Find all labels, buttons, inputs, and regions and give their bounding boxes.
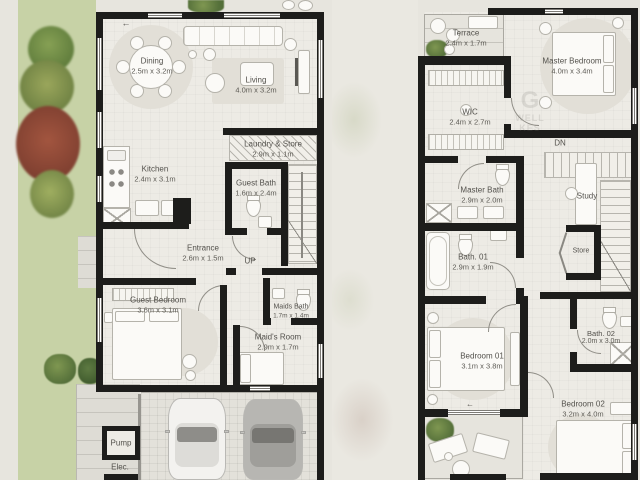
wall-segment	[486, 156, 520, 163]
wall-segment	[520, 296, 528, 417]
pendant-lamp	[612, 17, 624, 29]
outdoor-pot	[282, 0, 295, 10]
wic-closet	[428, 134, 504, 150]
room-label-bath-01: Bath. 012.9m x 1.9m	[452, 252, 493, 271]
wall-segment	[500, 409, 528, 417]
room-label-maids-bath: Maids Bath1.7m x 1.4m	[273, 304, 309, 321]
window	[224, 13, 280, 18]
nightstand	[427, 394, 438, 405]
window	[97, 176, 102, 202]
stairs-direction-line	[301, 172, 303, 258]
room-label-kitchen: Kitchen2.4m x 3.1m	[134, 164, 175, 183]
window	[545, 9, 563, 14]
armchair	[205, 73, 225, 93]
wall-segment	[424, 156, 458, 163]
car-mirror	[165, 430, 170, 433]
pump-label: Pump	[111, 439, 132, 448]
car-gray	[243, 399, 303, 480]
tv-cabinet	[298, 50, 310, 94]
wall-segment	[570, 299, 577, 329]
wall-segment	[267, 228, 287, 235]
wall-segment	[566, 273, 601, 280]
side-table	[188, 50, 197, 59]
watermark: G WELL KES	[500, 88, 560, 134]
planter-bush	[44, 354, 76, 384]
wall-segment	[223, 128, 324, 135]
terrace-bench	[468, 16, 498, 29]
room-label-master-bath: Master Bath2.9m x 2.0m	[460, 185, 503, 204]
side-table	[203, 48, 216, 61]
wall-segment	[450, 474, 506, 480]
study-label: Study	[577, 192, 597, 201]
bathroom-sink	[258, 216, 272, 228]
nightstand	[539, 22, 552, 35]
window	[318, 344, 323, 378]
elec-box	[104, 474, 138, 480]
wall-segment	[516, 156, 524, 258]
window	[632, 88, 637, 124]
watermark-glyph: G	[500, 88, 560, 114]
wall-segment	[540, 292, 638, 299]
wall-segment	[424, 223, 520, 231]
wall-segment	[488, 8, 638, 15]
wall-segment	[317, 392, 324, 480]
bathtub-inner	[429, 236, 447, 286]
vanity-sink	[483, 206, 504, 219]
room-label-living: Living4.0m x 3.2m	[235, 75, 276, 94]
pillow	[603, 35, 614, 63]
dn-label: DN	[554, 139, 566, 148]
entry-porch	[78, 236, 96, 288]
up-label: UP	[244, 257, 255, 266]
tv	[295, 58, 298, 86]
stove-burners	[107, 166, 127, 192]
room-label-terrace: Terrace2.4m x 1.7m	[445, 28, 486, 47]
kitchen-sink	[107, 150, 126, 161]
outdoor-pot	[298, 0, 313, 11]
nightstand	[427, 312, 439, 324]
floor-lamp	[284, 38, 297, 51]
room-label-dining: Dining2.5m x 3.2m	[131, 56, 172, 75]
car-mirror	[240, 431, 245, 434]
balcony-slider	[448, 410, 500, 415]
room-label-laundry-store: Laundry & Store2.9m x 1.1m	[244, 139, 302, 158]
pillow	[429, 330, 441, 358]
wall-segment	[424, 409, 448, 417]
pouf	[182, 354, 197, 369]
window	[97, 38, 102, 90]
wall-segment	[418, 56, 506, 65]
store-label: Store	[573, 248, 590, 255]
wall-segment	[570, 364, 638, 372]
wall-segment	[226, 162, 286, 169]
nightstand	[104, 312, 113, 323]
window	[632, 424, 637, 460]
wall-pier	[173, 198, 191, 224]
car-mirror	[224, 430, 229, 433]
room-label-bath-02: Bath. 022.0m x 3.0m	[582, 329, 621, 347]
sofa	[183, 26, 283, 46]
wall-segment	[262, 268, 324, 275]
shower	[426, 203, 452, 223]
car-windshield	[177, 427, 217, 442]
pillow	[240, 354, 251, 383]
pillow	[429, 360, 441, 388]
room-label-bedroom-01: Bedroom 013.1m x 3.8m	[460, 351, 504, 370]
wall-segment	[226, 268, 236, 275]
room-label-entrance: Entrance2.6m x 1.5m	[182, 243, 223, 262]
wall-segment	[424, 296, 486, 304]
tree	[30, 170, 74, 218]
terrace-chair	[430, 18, 446, 34]
kitchen-appliance	[135, 200, 159, 216]
floor-plan-canvas: ← Dini	[0, 0, 640, 480]
balcony-arrow-icon: ←	[466, 400, 474, 409]
bathroom-sink	[272, 288, 285, 299]
room-label-master-bedroom: Master Bedroom4.0m x 3.4m	[542, 56, 601, 75]
wall-segment	[631, 8, 638, 480]
wall-segment	[594, 225, 601, 280]
divider-strip	[332, 0, 418, 480]
elec-label: Elec.	[111, 463, 129, 472]
wall-segment	[220, 285, 227, 385]
wall-segment	[225, 228, 247, 235]
wic-closet	[428, 70, 504, 86]
window	[97, 298, 102, 342]
window	[148, 13, 182, 18]
wall-segment	[263, 318, 271, 325]
window	[97, 112, 102, 148]
wall-segment	[281, 162, 288, 266]
entry-arrow-icon: ←	[122, 18, 131, 28]
room-label-maids-room: Maid's Room2.9m x 1.7m	[255, 332, 301, 351]
door-opening	[250, 386, 270, 391]
wall-segment	[96, 278, 196, 285]
dining-chair	[116, 60, 130, 74]
pouf	[185, 370, 196, 381]
stairs-break-line	[600, 240, 631, 292]
room-label-guest-bedroom: Guest Bedroom3.6m x 3.1m	[130, 295, 186, 314]
car-windshield	[252, 428, 294, 443]
wall-segment	[225, 162, 232, 232]
bench	[510, 332, 520, 386]
wall-segment	[96, 385, 324, 392]
pillow	[603, 65, 614, 93]
vanity-sink	[457, 206, 478, 219]
car-white	[168, 398, 226, 480]
watermark-line2: KES	[500, 124, 560, 134]
wall-segment	[540, 473, 638, 480]
window	[318, 40, 323, 98]
room-label-guest-bath: Guest Bath1.6m x 2.4m	[235, 178, 276, 197]
room-label-bedroom-02: Bedroom 023.2m x 4.0m	[561, 399, 605, 418]
room-label-wic: WIC2.4m x 2.7m	[449, 107, 490, 126]
car-mirror	[301, 431, 306, 434]
balcony-stool	[444, 452, 453, 461]
wall-segment	[233, 325, 240, 385]
dining-chair	[172, 60, 186, 74]
